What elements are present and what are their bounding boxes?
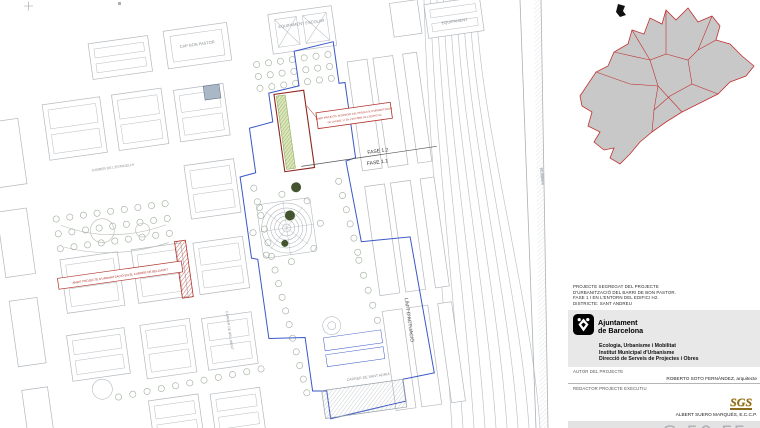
barcelona-outline bbox=[580, 8, 754, 164]
district-locator-map bbox=[570, 0, 760, 178]
paved-square bbox=[203, 84, 221, 100]
dept-line: Institut Municipal d'Urbanisme bbox=[599, 350, 760, 357]
author-label: AUTOR DEL PROJECTE bbox=[568, 367, 760, 375]
project-description: PROJECTE SEGREGAT DEL PROJECTE D'URBANIT… bbox=[568, 283, 760, 307]
sgs-logo: SGS bbox=[730, 396, 752, 410]
redactor-name: ALBERT SUERO MARQUÉS, E.C.C.P. bbox=[568, 411, 760, 419]
ajuntament-band: Ajuntament de Barcelona Ecologia, Urbani… bbox=[568, 310, 760, 367]
project-line: DISTRICTE: SANT ANDREU bbox=[573, 301, 760, 307]
crop-marks bbox=[24, 2, 121, 11]
railway-tracks: FC RENFE bbox=[424, 0, 548, 428]
dept-line: Ecologia, Urbanisme i Mobilitat bbox=[599, 343, 760, 350]
sheet-code-band: G-50.FF bbox=[568, 421, 760, 428]
author-name: ROBERTO SOTO FERNÁNDEZ, arquitecte bbox=[568, 375, 760, 383]
sheet-code: G-50.FF bbox=[662, 422, 746, 428]
ajuntament-logo-icon bbox=[573, 314, 594, 340]
location-marker bbox=[616, 4, 626, 17]
org-name: Ajuntament de Barcelona bbox=[598, 319, 643, 334]
park-circles bbox=[256, 197, 317, 258]
works-strip bbox=[322, 379, 407, 418]
street-estadella-label: CARRER DE L'ESTADELLA bbox=[92, 163, 136, 173]
redactor-label: REDACTOR PROJECTE EXECUTIU bbox=[568, 384, 760, 392]
street-sant-adria-label: CARRER DE SANT ADRIÀ bbox=[346, 372, 390, 382]
project-zone-h2 bbox=[274, 90, 315, 171]
department-lines: Ecologia, Urbanisme i Mobilitat Institut… bbox=[599, 343, 760, 363]
dept-line: Direcció de Serveis de Projectes i Obres bbox=[599, 356, 760, 363]
title-block: PROJECTE SEGREGAT DEL PROJECTE D'URBANIT… bbox=[568, 283, 760, 428]
drawing-sheet: FC RENFE bbox=[0, 0, 760, 428]
